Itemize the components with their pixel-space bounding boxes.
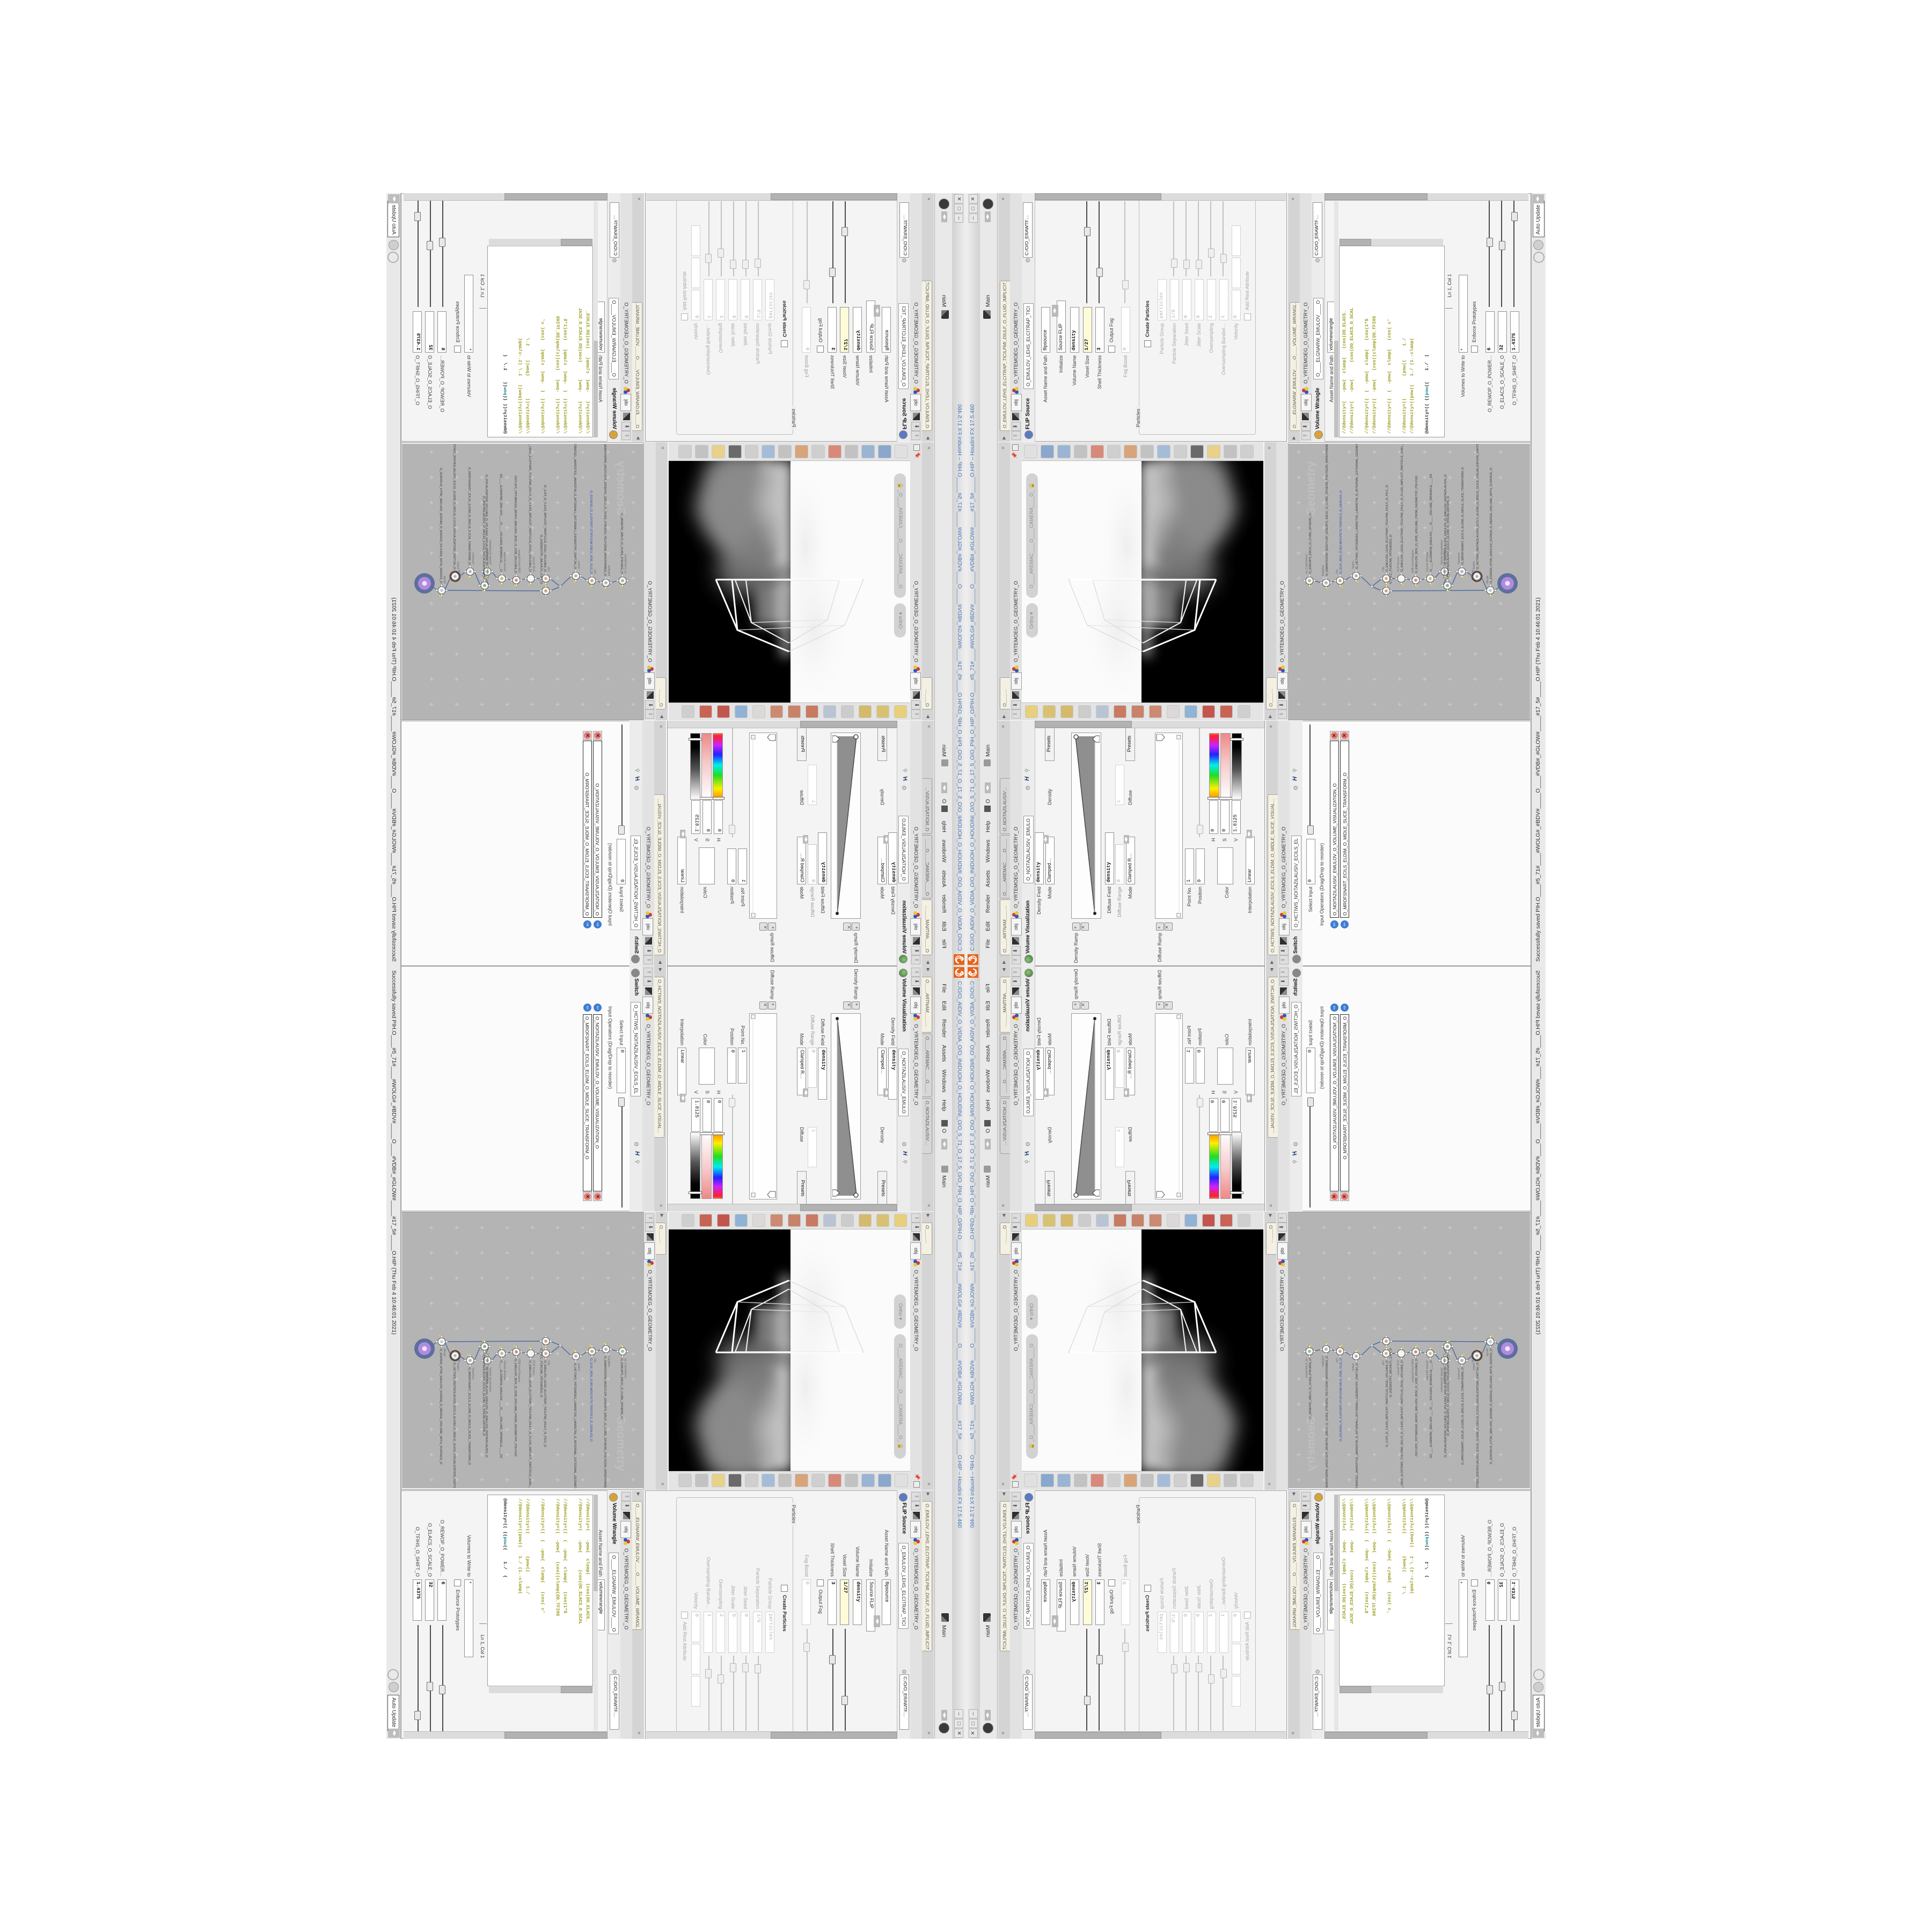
svg-text:an_CubeSphere: an_CubeSphere: [624, 1358, 627, 1378]
svg-text:File: File: [1336, 569, 1339, 574]
svg-text:Volume Wrangle: Volume Wrangle: [1426, 1360, 1429, 1380]
svg-text:O_ELIF_BDV_O.BO.MO3.PETS.TREPO: O_ELIF_BDV_O.BO.MO3.PETS.TREPOLS_O_GENUS…: [589, 1358, 592, 1441]
svg-text:O_EMULOV_BDV_O_VDB_VOLUME_FROM: O_EMULOV_BDV_O_VDB_VOLUME_FROM_GEOMETRY_…: [1415, 1359, 1418, 1457]
svg-text:O_EREHPS_EBUC_O_CUBE_SPHERE_O: O_EREHPS_EBUC_O_CUBE_SPHERE_O: [620, 513, 623, 574]
svg-text:Switch: Switch: [1352, 1363, 1355, 1371]
svg-text:FLIP Source: FLIP Source: [532, 1360, 535, 1375]
svg-text:O____ELGNARW_EMULOV____O____VO: O____ELGNARW_EMULOV____O____VOLUME_WRANG…: [499, 474, 502, 572]
svg-text:Switch: Switch: [1473, 561, 1476, 569]
svg-text:PolyWire: PolyWire: [607, 1356, 610, 1367]
svg-text:O_EREHPS_EBUC_O_CUBE_SPHERE_O: O_EREHPS_EBUC_O_CUBE_SPHERE_O: [1309, 513, 1312, 574]
svg-text:VDB from Polygons: VDB from Polygons: [517, 1359, 521, 1382]
svg-text:O_NOITAZILAUSIV_ECILS_ELDIM_O_: O_NOITAZILAUSIV_ECILS_ELDIM_O_VISUALIZAT…: [1447, 1353, 1450, 1436]
svg-text:VolumeVisualizationSlice: VolumeVisualizationSlice: [1443, 548, 1446, 579]
svg-text:FLIP Source: FLIP Source: [1397, 1360, 1400, 1375]
svg-text:O_EMARFERIW_NOGYLOP_EREHPS_EBU: O_EMARFERIW_NOGYLOP_EREHPS_EBUC_O_CUBE_S…: [603, 1356, 606, 1488]
svg-text:O_MROFSNART_ECILS_ELDIM_O_MIDL: O_MROFSNART_ECILS_ELDIM_O_MIDLE_SLICE_TR…: [1461, 467, 1465, 565]
svg-text:VolumeVisualizationSlice: VolumeVisualizationSlice: [486, 548, 489, 579]
svg-text:Merge: Merge: [443, 576, 446, 583]
svg-text:Volume Wrangle: Volume Wrangle: [1426, 552, 1429, 572]
svg-text:Clip: Clip: [1382, 567, 1385, 572]
svg-text:Transform: Transform: [471, 1367, 474, 1380]
svg-text:O_EMARFERIW_NOGYLOP_EREHPS_EBU: O_EMARFERIW_NOGYLOP_EREHPS_EBUC_O_CUBE_S…: [1326, 444, 1329, 576]
svg-text:VDB from Polygons: VDB from Polygons: [1411, 1359, 1415, 1382]
svg-text:FLIP Source: FLIP Source: [532, 557, 535, 572]
svg-text:Switch: Switch: [1352, 561, 1355, 569]
svg-text:O_NOITAZILAUSIV_ECILS_ELDIM_O_: O_NOITAZILAUSIV_ECILS_ELDIM_O_VISUALIZAT…: [1447, 496, 1450, 579]
svg-text:O_HCTIWS_NOITAZILAUSIV_ECILS_E: O_HCTIWS_NOITAZILAUSIV_ECILS_ELDIM_O_MID…: [452, 1363, 456, 1488]
svg-text:File: File: [1336, 1358, 1339, 1363]
svg-text:an_CubeSphere: an_CubeSphere: [1305, 1358, 1308, 1378]
svg-text:Volume Wrangle: Volume Wrangle: [503, 552, 506, 572]
svg-text:VDB from Polygons: VDB from Polygons: [1411, 550, 1415, 573]
svg-text:O_EMARFERIW_NOGYLOP_EREHPS_EBU: O_EMARFERIW_NOGYLOP_EREHPS_EBUC_O_CUBE_S…: [603, 444, 606, 576]
svg-text:VDB from Polygons: VDB from Polygons: [517, 550, 521, 573]
svg-text:O_EMULOV_LEHS_ELCITRAP_TICILPM: O_EMULOV_LEHS_ELCITRAP_TICILPMI_DIULF_O_…: [1386, 1360, 1389, 1447]
svg-text:O_NOITAZILAUSIV_ECILS_ELDIM_O_: O_NOITAZILAUSIV_ECILS_ELDIM_O_VISUALIZAT…: [482, 1353, 485, 1436]
svg-text:Merge: Merge: [443, 1349, 446, 1356]
svg-text:File: File: [593, 569, 596, 574]
svg-text:O_HCTIWS_YRTEMOEG_LANRETXE_LAN: O_HCTIWS_YRTEMOEG_LANRETXE_LANRETNI_O_IN…: [573, 1363, 576, 1488]
svg-text:O_PILC_PUKCAB_YRTEMOEG_O: O_PILC_PUKCAB_YRTEMOEG_O: [1389, 1348, 1393, 1397]
svg-text:VolumeVisualizationSlice: VolumeVisualizationSlice: [1443, 1353, 1446, 1384]
svg-text:O_HCTIWS_YRTEMOEG_LANRETXE_LAN: O_HCTIWS_YRTEMOEG_LANRETXE_LANRETNI_O_IN…: [573, 444, 576, 569]
svg-text:O_EREHPS_EBUC_O_CUBE_SPHERE_O: O_EREHPS_EBUC_O_CUBE_SPHERE_O: [620, 1358, 623, 1419]
svg-text:O_EMULOV_LEHS_ELCITRAP_TICILPM: O_EMULOV_LEHS_ELCITRAP_TICILPMI_DIULF_O_…: [1401, 444, 1404, 572]
svg-text:O_EREHPS_EBUC_O_CUBE_SPHERE_O: O_EREHPS_EBUC_O_CUBE_SPHERE_O: [1309, 1358, 1312, 1419]
svg-text:O_EGREM_HTIW_EMULOV_EGREM_O_ME: O_EGREM_HTIW_EMULOV_EGREM_O_MERGE_VOLUME…: [1490, 1349, 1493, 1465]
svg-text:Clip: Clip: [547, 567, 550, 572]
svg-text:O_PILC_PUKCAB_YRTEMOEG_O: O_PILC_PUKCAB_YRTEMOEG_O: [539, 535, 543, 584]
svg-text:O_EMARFERIW_NOGYLOP_EREHPS_EBU: O_EMARFERIW_NOGYLOP_EREHPS_EBUC_O_CUBE_S…: [1326, 1356, 1329, 1488]
svg-text:Switch: Switch: [456, 1363, 459, 1371]
svg-text:an_CubeSphere: an_CubeSphere: [1305, 554, 1308, 574]
svg-text:O_EGREM_HTIW_EMULOV_EGREM_O_ME: O_EGREM_HTIW_EMULOV_EGREM_O_MERGE_VOLUME…: [1490, 467, 1493, 583]
svg-text:O_MROFSNART_ECILS_ELDIM_O_MIDL: O_MROFSNART_ECILS_ELDIM_O_MIDLE_SLICE_TR…: [467, 467, 471, 565]
svg-text:O_HCTIWS_YRTEMOEG_LANRETXE_LAN: O_HCTIWS_YRTEMOEG_LANRETXE_LANRETNI_O_IN…: [1356, 1363, 1359, 1488]
svg-text:O_EMULOV_BDV_O_VDB_VOLUME_FROM: O_EMULOV_BDV_O_VDB_VOLUME_FROM_GEOMETRY_…: [514, 475, 517, 573]
svg-text:O____ELGNARW_EMULOV____O____VO: O____ELGNARW_EMULOV____O____VOLUME_WRANG…: [1430, 474, 1433, 572]
svg-text:Clip: Clip: [1382, 1360, 1385, 1365]
svg-text:O_EMULOV_LEHS_ELCITRAP_TICILPM: O_EMULOV_LEHS_ELCITRAP_TICILPMI_DIULF_O_…: [1386, 485, 1389, 572]
svg-text:Transform: Transform: [1458, 1367, 1461, 1380]
svg-text:Clip: Clip: [547, 1360, 550, 1365]
svg-text:File: File: [593, 1358, 596, 1363]
svg-text:O_EMULOV_LEHS_ELCITRAP_TICILPM: O_EMULOV_LEHS_ELCITRAP_TICILPMI_DIULF_O_…: [528, 444, 531, 572]
svg-text:O_EMULOV_LEHS_ELCITRAP_TICILPM: O_EMULOV_LEHS_ELCITRAP_TICILPMI_DIULF_O_…: [528, 1360, 531, 1488]
svg-text:PolyWire: PolyWire: [1322, 1356, 1325, 1367]
svg-text:Merge: Merge: [1486, 1349, 1489, 1356]
svg-text:Switch: Switch: [456, 561, 459, 569]
svg-text:O_EMULOV_BDV_O_VDB_VOLUME_FROM: O_EMULOV_BDV_O_VDB_VOLUME_FROM_GEOMETRY_…: [1415, 475, 1418, 573]
svg-text:O_EMULOV_BDV_O_VDB_VOLUME_FROM: O_EMULOV_BDV_O_VDB_VOLUME_FROM_GEOMETRY_…: [514, 1359, 517, 1457]
svg-text:O_MROFSNART_ECILS_ELDIM_O_MIDL: O_MROFSNART_ECILS_ELDIM_O_MIDLE_SLICE_TR…: [1461, 1367, 1465, 1465]
svg-text:Switch: Switch: [577, 1363, 580, 1371]
svg-text:O_EMULOV_LEHS_ELCITRAP_TICILPM: O_EMULOV_LEHS_ELCITRAP_TICILPMI_DIULF_O_…: [543, 1360, 546, 1447]
svg-text:Switch: Switch: [1473, 1363, 1476, 1371]
svg-text:O_PILC_PUKCAB_YRTEMOEG_O: O_PILC_PUKCAB_YRTEMOEG_O: [539, 1348, 543, 1397]
svg-text:O_ELIF_BDV_O.BO.MO3.PETS.TREPO: O_ELIF_BDV_O.BO.MO3.PETS.TREPOLS_O_GENUS…: [1340, 1358, 1343, 1441]
svg-text:Switch: Switch: [577, 561, 580, 569]
svg-text:PolyWire: PolyWire: [607, 565, 610, 576]
svg-text:O_EMULOV_LEHS_ELCITRAP_TICILPM: O_EMULOV_LEHS_ELCITRAP_TICILPMI_DIULF_O_…: [543, 485, 546, 572]
svg-text:Merge: Merge: [1486, 576, 1489, 583]
svg-text:O_MROFSNART_ECILS_ELDIM_O_MIDL: O_MROFSNART_ECILS_ELDIM_O_MIDLE_SLICE_TR…: [467, 1367, 471, 1465]
svg-text:O_PILC_PUKCAB_YRTEMOEG_O: O_PILC_PUKCAB_YRTEMOEG_O: [1389, 535, 1393, 584]
svg-text:Transform: Transform: [471, 552, 474, 565]
svg-text:Transform: Transform: [1458, 552, 1461, 565]
svg-text:O_NOITAZILAUSIV_ECILS_ELDIM_O_: O_NOITAZILAUSIV_ECILS_ELDIM_O_VISUALIZAT…: [482, 496, 485, 579]
svg-text:O_EMULOV_LEHS_ELCITRAP_TICILPM: O_EMULOV_LEHS_ELCITRAP_TICILPMI_DIULF_O_…: [1401, 1360, 1404, 1488]
svg-text:PolyWire: PolyWire: [1322, 565, 1325, 576]
svg-text:O_HCTIWS_NOITAZILAUSIV_ECILS_E: O_HCTIWS_NOITAZILAUSIV_ECILS_ELDIM_O_MID…: [1476, 444, 1480, 569]
svg-text:Volume Wrangle: Volume Wrangle: [503, 1360, 506, 1380]
svg-text:O_HCTIWS_YRTEMOEG_LANRETXE_LAN: O_HCTIWS_YRTEMOEG_LANRETXE_LANRETNI_O_IN…: [1356, 444, 1359, 569]
svg-text:O_HCTIWS_NOITAZILAUSIV_ECILS_E: O_HCTIWS_NOITAZILAUSIV_ECILS_ELDIM_O_MID…: [1476, 1363, 1480, 1488]
svg-text:an_CubeSphere: an_CubeSphere: [624, 554, 627, 574]
svg-text:O_EGREM_HTIW_EMULOV_EGREM_O_ME: O_EGREM_HTIW_EMULOV_EGREM_O_MERGE_VOLUME…: [439, 467, 442, 583]
svg-text:O_ELIF_BDV_O.BO.MO3.PETS.TREPO: O_ELIF_BDV_O.BO.MO3.PETS.TREPOLS_O_GENUS…: [589, 491, 592, 574]
svg-text:O_ELIF_BDV_O.BO.MO3.PETS.TREPO: O_ELIF_BDV_O.BO.MO3.PETS.TREPOLS_O_GENUS…: [1340, 491, 1343, 574]
svg-text:O____ELGNARW_EMULOV____O____VO: O____ELGNARW_EMULOV____O____VOLUME_WRANG…: [499, 1360, 502, 1458]
svg-text:O_EGREM_HTIW_EMULOV_EGREM_O_ME: O_EGREM_HTIW_EMULOV_EGREM_O_MERGE_VOLUME…: [439, 1349, 442, 1465]
svg-text:VolumeVisualizationSlice: VolumeVisualizationSlice: [486, 1353, 489, 1384]
svg-text:FLIP Source: FLIP Source: [1397, 557, 1400, 572]
svg-text:O_HCTIWS_NOITAZILAUSIV_ECILS_E: O_HCTIWS_NOITAZILAUSIV_ECILS_ELDIM_O_MID…: [452, 444, 456, 569]
svg-text:O____ELGNARW_EMULOV____O____VO: O____ELGNARW_EMULOV____O____VOLUME_WRANG…: [1430, 1360, 1433, 1458]
